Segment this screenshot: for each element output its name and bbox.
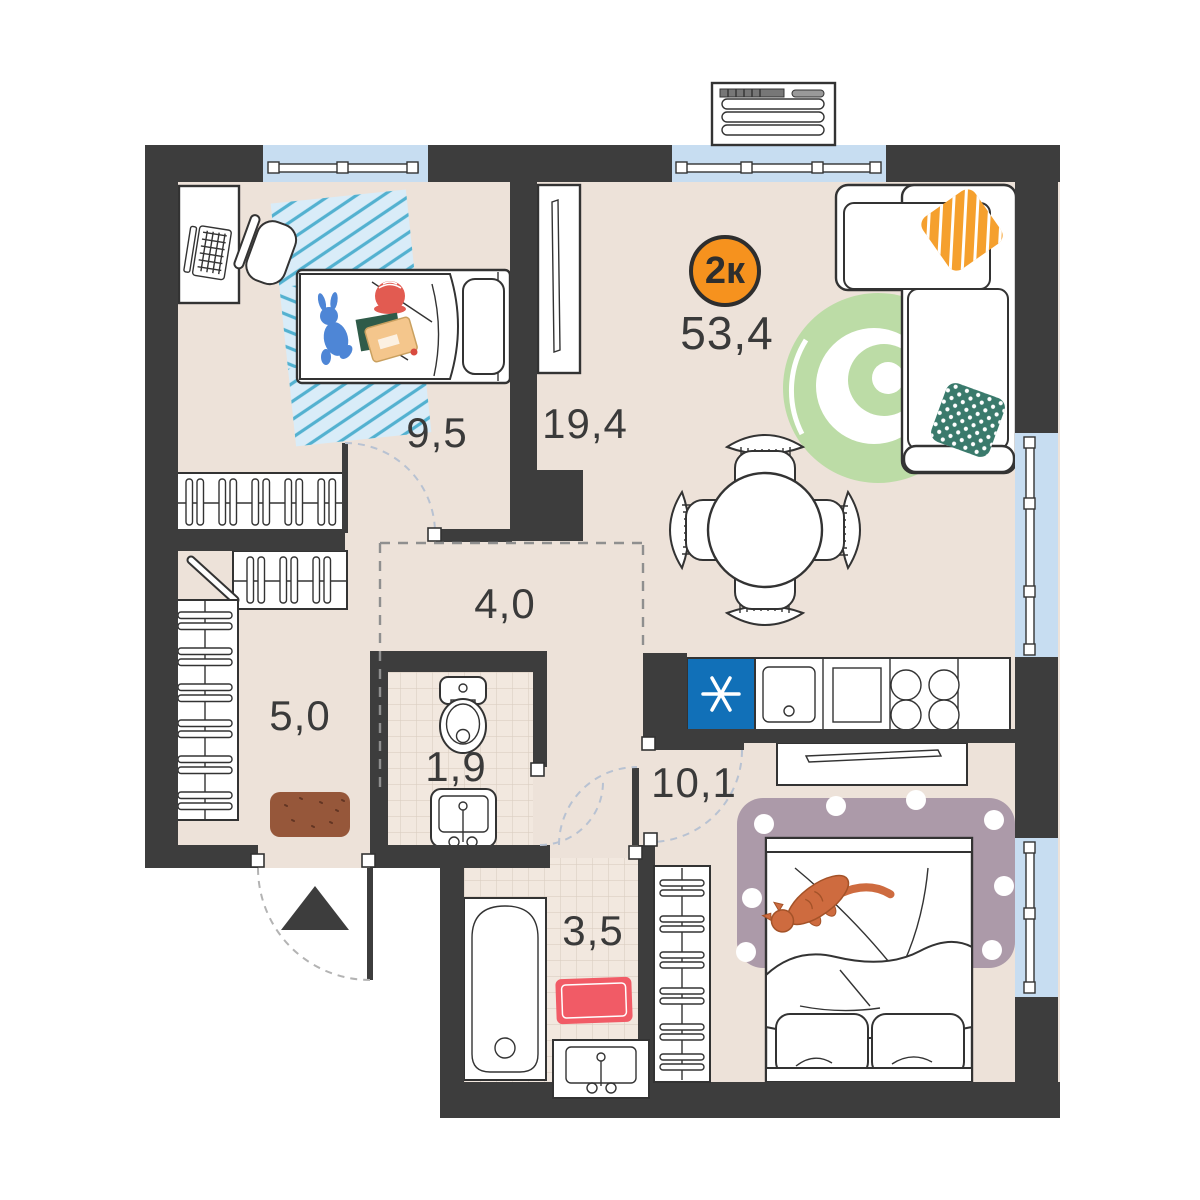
floor-plan-canvas — [0, 0, 1200, 1200]
kids-wardrobe-icon — [172, 473, 344, 531]
hall-wardrobe-left-icon — [172, 600, 238, 820]
total-area-label: 53,4 — [680, 306, 774, 360]
dining-table-icon — [708, 473, 822, 587]
window-right-living — [1015, 433, 1058, 657]
apartment-type-badge: 2к — [689, 235, 761, 307]
floor-plan-page: 2к 53,4 9,5 19,4 4,0 5,0 1,9 10,1 3,5 — [0, 0, 1200, 1200]
window-right-bedroom — [1015, 838, 1058, 997]
room-area-label-kids-bedroom: 9,5 — [406, 409, 467, 457]
bedroom-wardrobe-icon — [654, 866, 710, 1082]
bathtub-icon — [464, 898, 546, 1080]
room-area-label-hallway: 5,0 — [269, 692, 330, 740]
wc-sink-icon — [431, 789, 496, 847]
window-top-left — [263, 145, 428, 182]
toilet-icon — [440, 677, 486, 753]
kitchen-sink-icon — [763, 667, 815, 722]
bath-mat-icon — [555, 977, 633, 1025]
kitchen-counter-icon — [687, 658, 1010, 730]
room-area-label-bathroom: 3,5 — [562, 907, 623, 955]
mirror-cabinet-icon — [538, 185, 580, 373]
oven-icon — [833, 668, 881, 722]
window-top-right — [672, 145, 886, 182]
room-area-label-living-kitchen: 19,4 — [542, 400, 628, 448]
double-bed-icon — [766, 838, 972, 1082]
room-area-label-wc: 1,9 — [425, 743, 486, 791]
room-area-label-corridor: 4,0 — [474, 580, 535, 628]
doormat-icon — [270, 792, 350, 837]
tv-console-icon — [777, 743, 967, 785]
room-area-label-bedroom: 10,1 — [651, 759, 737, 807]
bath-sink-icon — [553, 1040, 649, 1098]
air-conditioner-icon — [712, 83, 835, 145]
desk-icon — [179, 186, 239, 303]
